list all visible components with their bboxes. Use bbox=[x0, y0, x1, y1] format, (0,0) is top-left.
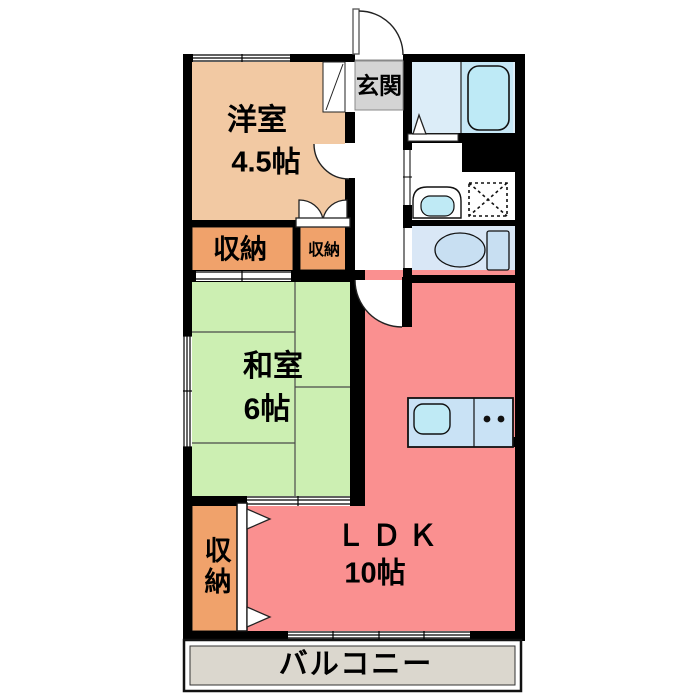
floor-plan: 洋室 4.5帖 玄関 収納 収納 和室 6帖 ＬＤＫ 10帖 収納 バルコニー bbox=[0, 0, 700, 700]
kitchen-sink bbox=[414, 404, 450, 434]
room-yoshitsu bbox=[192, 62, 345, 220]
closet-lower-label: 収納 bbox=[202, 536, 229, 598]
washbasin bbox=[413, 187, 461, 218]
floor-plan-drawing bbox=[0, 0, 700, 700]
yoshitsu-size-label: 4.5帖 bbox=[231, 149, 300, 178]
gas-burner-left bbox=[484, 416, 491, 423]
washitsu-label: 和室 bbox=[243, 352, 303, 382]
shoe-cabinet-notch bbox=[323, 62, 345, 112]
closet-upper-right-label: 収納 bbox=[308, 243, 340, 259]
kitchen-counter bbox=[408, 398, 513, 447]
room-washitsu bbox=[192, 282, 350, 496]
bathtub bbox=[468, 66, 509, 130]
balcony-label: バルコニー bbox=[279, 651, 433, 680]
toilet bbox=[435, 231, 509, 270]
ldk-label: ＬＤＫ bbox=[336, 523, 444, 552]
yoshitsu-label: 洋室 bbox=[227, 106, 287, 136]
ldk-size-label: 10帖 bbox=[344, 560, 405, 589]
entrance-door-swing bbox=[353, 9, 403, 55]
washitsu-size-label: 6帖 bbox=[244, 395, 291, 425]
genkan-label: 玄関 bbox=[356, 75, 402, 98]
closet-upper-left-label: 収納 bbox=[213, 237, 267, 264]
gas-burner-right bbox=[498, 416, 505, 423]
